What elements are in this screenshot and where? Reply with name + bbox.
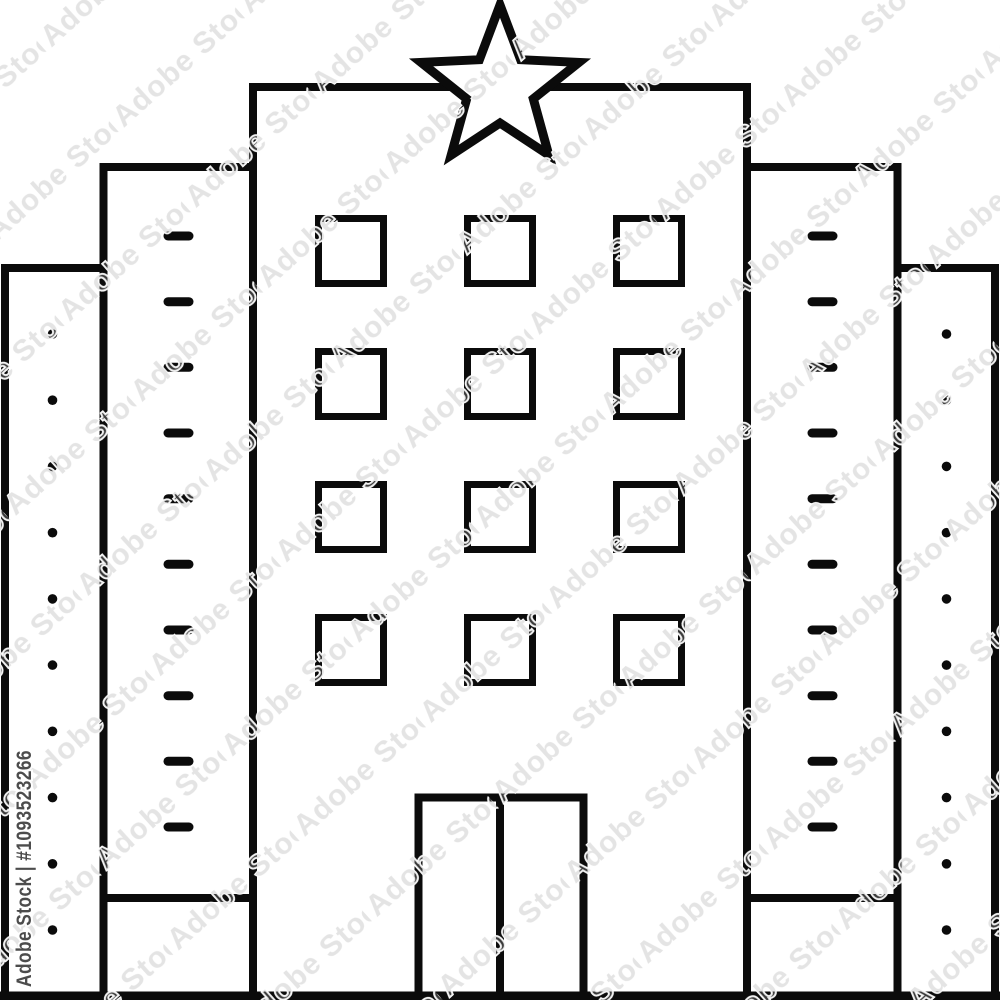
hotel-star-building-icon: Adobe Stock xyxy=(0,0,1000,1000)
watermark-tile-overlay xyxy=(0,0,1000,1000)
stock-image-preview: Adobe Stock xyxy=(0,0,1000,1000)
watermark-asset-id: Adobe Stock | #1093523266 xyxy=(13,750,36,987)
